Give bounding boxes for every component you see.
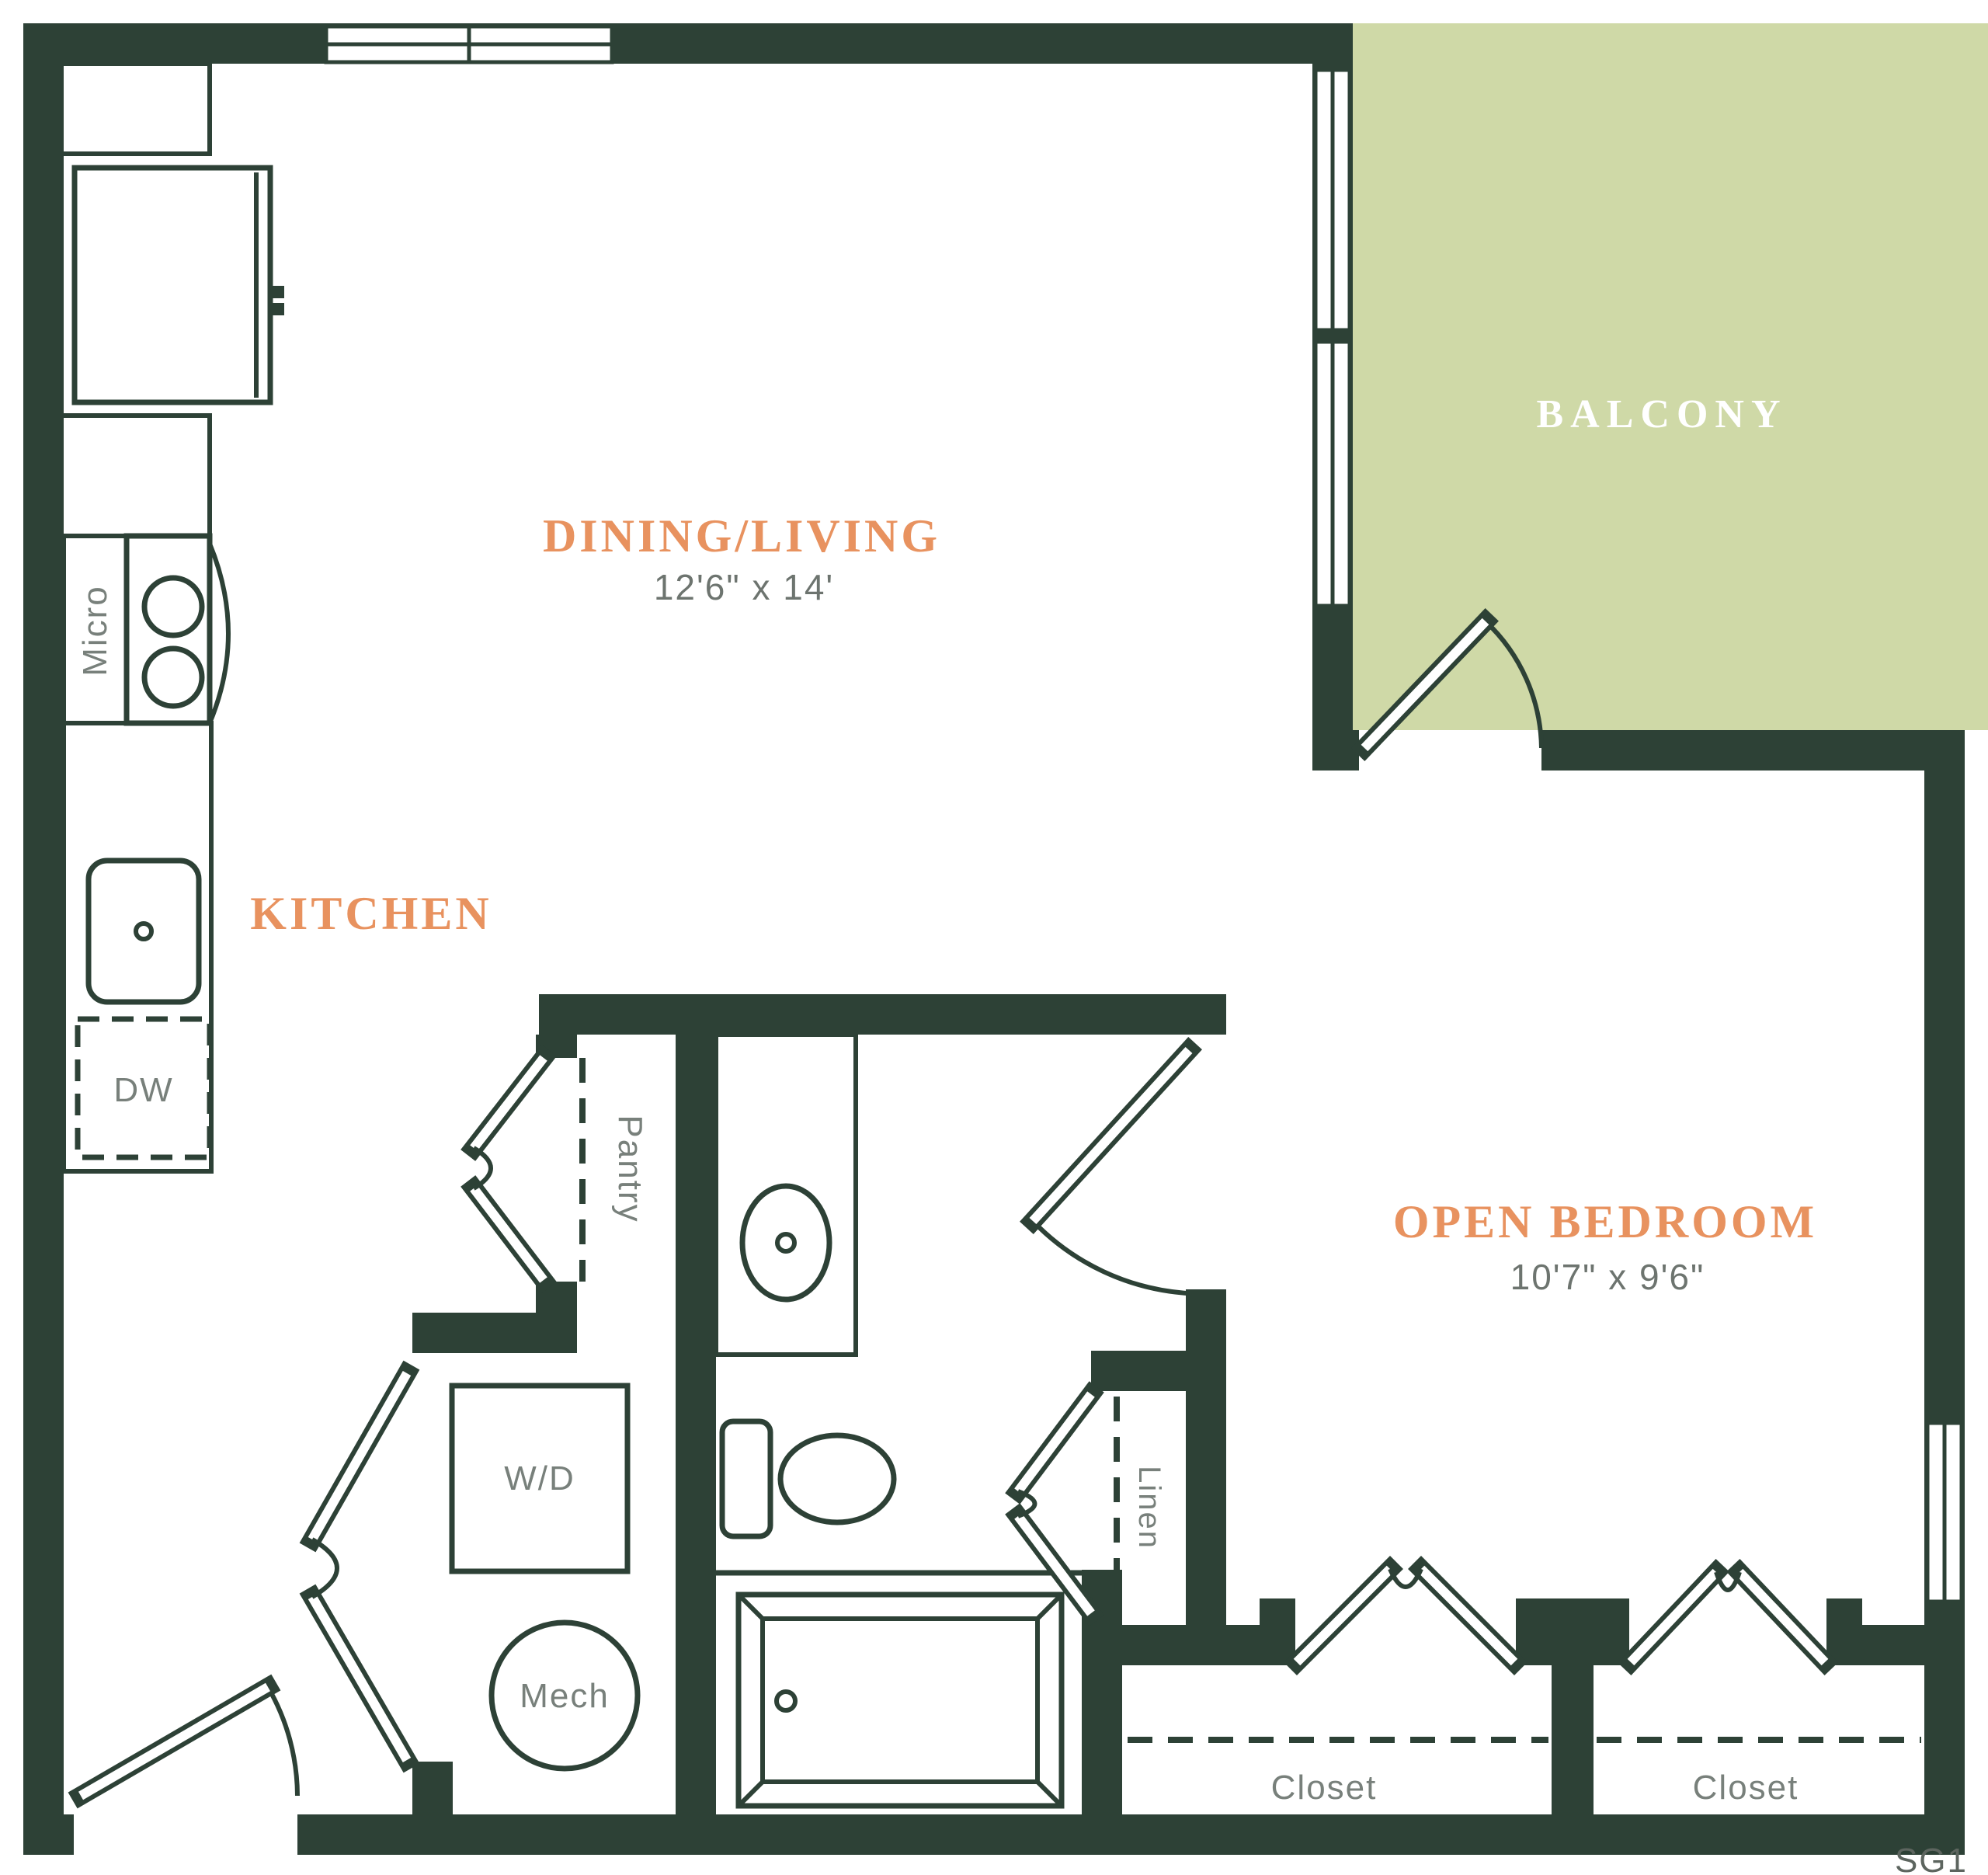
kitchen-label: KITCHEN xyxy=(250,888,492,939)
stove-arc xyxy=(210,544,228,723)
closet-left-leaf-b-inner xyxy=(1421,1569,1514,1662)
entry-door xyxy=(81,1687,297,1796)
wall-closet-band-left xyxy=(1082,1625,1263,1665)
floor-plan-page: DINING/LIVING 12'6" x 14' KITCHEN OPEN B… xyxy=(0,0,1988,1875)
closet-right-leaf-b-inner xyxy=(1739,1572,1825,1662)
mechanical-label: Mech xyxy=(520,1677,610,1715)
wall-bedroom-right xyxy=(1924,730,1965,1855)
bathroom-vanity xyxy=(716,1035,856,1355)
vanity-basin xyxy=(742,1186,829,1299)
entry-door-swing xyxy=(268,1687,297,1796)
washer-dryer-label: W/D xyxy=(504,1459,575,1498)
refrigerator-handle-bottom xyxy=(269,303,284,315)
closet-left-leaf-a-inner xyxy=(1297,1569,1390,1662)
window-bedroom-right xyxy=(1927,1423,1962,1602)
wall-wd-top xyxy=(412,1313,577,1353)
wall-balcony-bottom-left xyxy=(1312,730,1359,771)
wall-closet-band-right xyxy=(1862,1625,1924,1665)
pantry-label: Pantry xyxy=(611,1115,649,1223)
plan-code-label: SG1 xyxy=(1895,1842,1968,1875)
wd-door-bottom-leaf-inner xyxy=(312,1597,407,1760)
kitchen-sink xyxy=(89,861,199,1002)
bathroom-door-leaf-inner xyxy=(1033,1050,1189,1221)
wall-balcony-bottom-right xyxy=(1541,730,1965,771)
closet-left-label: Closet xyxy=(1271,1769,1378,1807)
floor-plan-svg: DINING/LIVING 12'6" x 14' KITCHEN OPEN B… xyxy=(0,0,1988,1875)
pantry-bifold-doors xyxy=(474,1058,544,1280)
pantry-leaf-top-inner xyxy=(474,1058,544,1148)
wall-closet-jamb-right xyxy=(1826,1598,1862,1665)
refrigerator-body xyxy=(75,168,270,402)
kitchen-counter-upper xyxy=(61,416,210,536)
closet-right-label: Closet xyxy=(1693,1769,1799,1807)
closet-right-bifold xyxy=(1631,1572,1825,1662)
closet-left-bifold xyxy=(1297,1569,1514,1662)
toilet xyxy=(722,1421,894,1536)
entry-door-leaf-inner xyxy=(81,1687,268,1796)
wall-bathroom-left xyxy=(676,1035,716,1814)
wd-door-top-leaf-inner xyxy=(312,1373,407,1539)
wall-bottom-left-stub xyxy=(23,1814,74,1855)
dining-living-dimensions: 12'6" x 14' xyxy=(654,567,834,607)
open-bedroom-dimensions: 10'7" x 9'6" xyxy=(1510,1257,1705,1297)
refrigerator xyxy=(75,168,284,402)
toilet-tank xyxy=(722,1421,770,1536)
window-balcony-upper xyxy=(1315,70,1350,330)
wall-linen-right xyxy=(1186,1391,1226,1625)
bathroom-door-swing xyxy=(1033,1221,1187,1293)
bathtub xyxy=(739,1595,1062,1806)
wd-closet-doors xyxy=(312,1373,407,1760)
toilet-bowl xyxy=(780,1435,894,1522)
wall-bottom xyxy=(297,1814,1965,1855)
tub-outer xyxy=(739,1595,1062,1806)
dining-living-label: DINING/LIVING xyxy=(543,510,940,562)
refrigerator-handle-top xyxy=(269,286,284,298)
dishwasher-label: DW xyxy=(113,1071,173,1109)
linen-bifold-doors xyxy=(1018,1394,1091,1613)
kitchen-corner-cabinet xyxy=(61,64,210,154)
sink-basin xyxy=(89,861,199,1002)
wall-closet-jamb-left xyxy=(1260,1598,1295,1665)
pantry-leaf-bottom-inner xyxy=(474,1188,544,1280)
balcony-area xyxy=(1353,23,1988,730)
wall-top xyxy=(23,23,1353,64)
wall-wd-bottom-stub xyxy=(412,1762,453,1814)
wall-bathroom-top xyxy=(539,994,1226,1035)
wall-closet-middle xyxy=(1516,1598,1629,1665)
open-bedroom-label: OPEN BEDROOM xyxy=(1393,1196,1817,1247)
wall-bathdoor-stub xyxy=(1186,1289,1226,1353)
bathroom-fixtures xyxy=(716,1035,1062,1806)
microwave-label: Micro xyxy=(76,585,114,677)
wall-left xyxy=(23,23,64,1855)
wall-linen-top xyxy=(1091,1351,1226,1391)
balcony-label: BALCONY xyxy=(1536,392,1787,437)
stove xyxy=(127,536,228,723)
bathroom-door xyxy=(1033,1050,1189,1293)
linen-label: Linen xyxy=(1132,1466,1166,1550)
linen-leaf-top-inner xyxy=(1018,1394,1091,1491)
window-balcony-lower xyxy=(1315,342,1350,606)
stove-burner-top xyxy=(144,578,202,635)
wall-closet-divider xyxy=(1552,1665,1594,1814)
window-top-wall xyxy=(326,26,612,62)
stove-burner-bottom xyxy=(144,649,202,706)
closet-right-leaf-a-inner xyxy=(1631,1572,1716,1662)
